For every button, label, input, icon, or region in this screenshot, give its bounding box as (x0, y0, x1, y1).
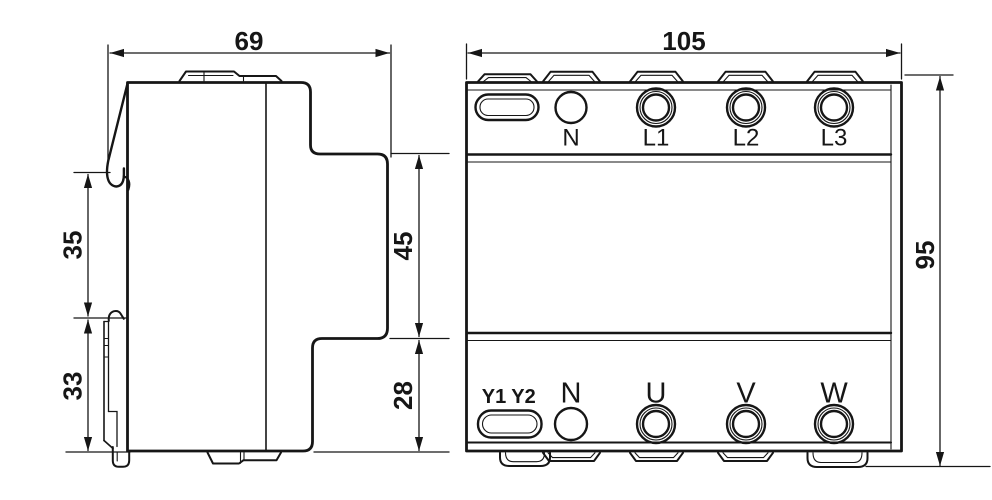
bottom-foot-right-outline (808, 453, 868, 467)
dim28-value: 28 (388, 381, 418, 410)
front-view: N L1 L2 L3 Y1 Y2 (467, 26, 991, 467)
dimension-front-lower-28: 28 (314, 340, 449, 452)
release-lever-and-hook (107, 84, 128, 187)
dimension-depth-69: 69 (108, 26, 391, 160)
top-indicator-window-inner (480, 99, 534, 116)
bottom-foot-left-inner (506, 453, 545, 462)
side-top-terminal-screw (180, 72, 282, 82)
terminal-port-V-chamfer (730, 408, 762, 440)
dim95-value: 95 (910, 241, 940, 270)
front-bottom-terminal-row: Y1 Y2 N U V W (478, 378, 853, 444)
dimension-front-upper-45: 45 (388, 154, 449, 339)
top-cover-2-inner (549, 75, 595, 81)
terminal-label-V: V (736, 378, 756, 410)
bottom-foot-right-inner (813, 453, 862, 463)
terminal-port-U-chamfer (640, 408, 672, 440)
dim28-arrow-bottom (415, 437, 423, 451)
front-bottom-screw-covers (500, 453, 868, 467)
terminal-port-U-inner (643, 411, 669, 437)
terminal-port-L3 (815, 89, 853, 127)
terminal-label-N-bottom: N (561, 378, 582, 410)
dimension-upper-height-35: 35 (58, 173, 127, 319)
dim28-arrow-top (415, 340, 423, 354)
terminal-port-L1 (637, 89, 675, 127)
dim45-arrow-top (415, 155, 423, 169)
terminal-port-V-inner (733, 411, 759, 437)
terminal-port-L2 (727, 89, 765, 127)
din-clip-top-tab (109, 311, 124, 321)
terminal-label-Y1: Y1 (482, 386, 506, 408)
terminal-port-L3-chamfer (818, 92, 850, 124)
dim105-arrow-right (886, 49, 900, 57)
side-view: 69 35 33 45 (58, 26, 450, 467)
dim105-arrow-left (468, 49, 482, 57)
front-upper-divider (467, 155, 891, 163)
top-indicator-window (476, 95, 539, 121)
dim95-arrow-bottom (936, 452, 944, 466)
dimension-height-95: 95 (866, 75, 990, 467)
terminal-port-U (637, 405, 675, 443)
terminal-port-W-inner (821, 411, 847, 437)
dimension-drawing: 69 35 33 45 (0, 0, 992, 500)
dim69-value: 69 (235, 26, 264, 56)
dim33-arrow-bottom (84, 437, 92, 451)
front-lower-divider (467, 333, 891, 341)
terminal-port-N-top (556, 92, 587, 123)
top-cover-4-inner (724, 75, 768, 81)
terminal-label-N-top: N (562, 125, 579, 152)
terminal-label-W: W (820, 378, 848, 410)
terminal-port-L1-inner (643, 95, 669, 121)
top-cover-4-outline (718, 72, 773, 82)
dimension-lower-height-33: 33 (58, 320, 131, 453)
bottom-cover-2-inner (548, 453, 595, 458)
dim95-arrow-top (936, 77, 944, 91)
top-cover-3-inner (636, 75, 678, 81)
dim35-arrow-bottom (84, 303, 92, 317)
terminal-port-L1-chamfer (640, 92, 672, 124)
dim69-arrow-right (376, 49, 390, 57)
dim45-value: 45 (388, 232, 418, 261)
terminal-label-L1: L1 (643, 125, 670, 152)
terminal-label-L2: L2 (733, 125, 760, 152)
dim69-arrow-left (110, 49, 124, 57)
dim33-arrow-top (84, 320, 92, 334)
top-cover-1-inner (484, 78, 532, 82)
din-clip-bottom-slant (104, 441, 113, 449)
bottom-cover-4-inner (723, 453, 768, 458)
dim35-value: 35 (58, 231, 88, 260)
terminal-port-L2-chamfer (730, 92, 762, 124)
front-top-screw-covers (478, 72, 863, 82)
terminal-port-W (815, 405, 853, 443)
front-top-terminal-row: N L1 L2 L3 (476, 89, 854, 152)
top-cover-2-outline (543, 72, 600, 82)
terminal-label-Y2: Y2 (511, 386, 535, 408)
terminal-port-W-chamfer (818, 408, 850, 440)
top-cover-3-outline (630, 72, 683, 82)
bottom-cover-3-outline (630, 453, 683, 461)
din-rail-clip (104, 311, 129, 467)
top-cover-5-outline (807, 72, 863, 82)
dim33-value: 33 (58, 372, 88, 401)
terminal-label-U: U (646, 378, 667, 410)
technical-drawing-page: 69 35 33 45 (0, 0, 992, 500)
dim35-arrow-top (84, 174, 92, 188)
terminal-port-L2-inner (733, 95, 759, 121)
terminal-port-V (727, 405, 765, 443)
side-body-outline (128, 83, 388, 452)
bottom-indicator-window-inner (483, 415, 538, 433)
top-cover-5-inner (813, 75, 858, 81)
side-bottom-terminal-screw (208, 453, 282, 464)
terminal-port-N-bottom (555, 408, 587, 440)
terminal-port-L3-inner (821, 95, 847, 121)
bottom-cover-3-inner (635, 453, 678, 458)
terminal-label-L3: L3 (821, 125, 848, 152)
side-top-screw-outline (180, 72, 282, 82)
dim45-arrow-bottom (415, 323, 423, 337)
din-clip-lower-step (109, 412, 118, 447)
dim105-value: 105 (662, 26, 705, 56)
